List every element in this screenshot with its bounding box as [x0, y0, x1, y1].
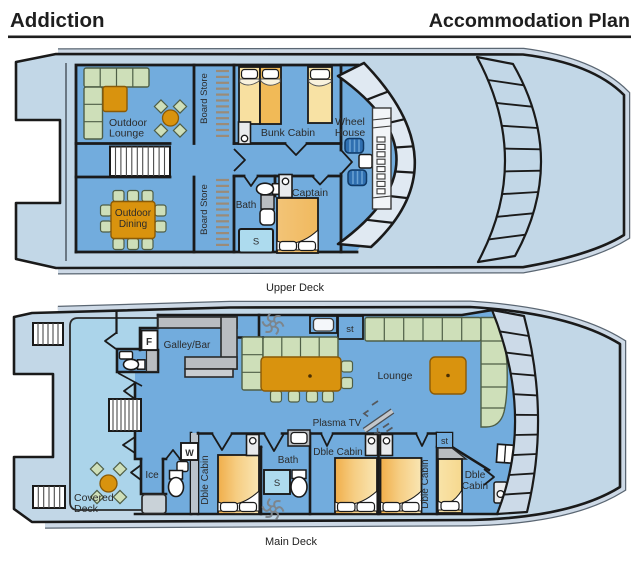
- svg-text:S: S: [274, 478, 280, 489]
- svg-text:Plasma TV: Plasma TV: [313, 418, 362, 429]
- svg-text:Dble: Dble: [465, 470, 486, 481]
- svg-text:Galley/Bar: Galley/Bar: [164, 340, 211, 351]
- svg-text:Cabin: Cabin: [462, 481, 488, 492]
- svg-text:Board Store: Board Store: [199, 73, 210, 124]
- svg-text:Bath: Bath: [278, 455, 299, 466]
- svg-text:Lounge: Lounge: [109, 128, 144, 140]
- svg-text:Bunk Cabin: Bunk Cabin: [261, 127, 315, 139]
- svg-text:Addiction: Addiction: [10, 9, 105, 32]
- svg-text:Main Deck: Main Deck: [265, 536, 317, 548]
- svg-text:Lounge: Lounge: [377, 370, 412, 382]
- svg-text:Captain: Captain: [292, 187, 328, 199]
- svg-text:Board Store: Board Store: [199, 184, 210, 235]
- svg-text:F: F: [146, 337, 152, 348]
- svg-text:Outdoor: Outdoor: [115, 208, 152, 219]
- svg-text:W: W: [185, 448, 194, 458]
- svg-text:st: st: [441, 436, 449, 446]
- svg-text:Ice: Ice: [145, 470, 159, 481]
- svg-text:Bath: Bath: [236, 200, 257, 211]
- svg-text:Upper Deck: Upper Deck: [266, 282, 325, 294]
- svg-text:Dining: Dining: [119, 219, 147, 230]
- svg-text:Deck: Deck: [74, 503, 99, 515]
- svg-text:House: House: [335, 127, 366, 139]
- svg-text:Dble Cabin: Dble Cabin: [200, 455, 211, 504]
- svg-text:Dble Cabin: Dble Cabin: [313, 447, 362, 458]
- svg-text:S: S: [253, 237, 259, 248]
- svg-text:st: st: [346, 324, 354, 335]
- svg-text:Accommodation Plan: Accommodation Plan: [429, 10, 630, 32]
- svg-text:Dble Cabin: Dble Cabin: [420, 459, 431, 508]
